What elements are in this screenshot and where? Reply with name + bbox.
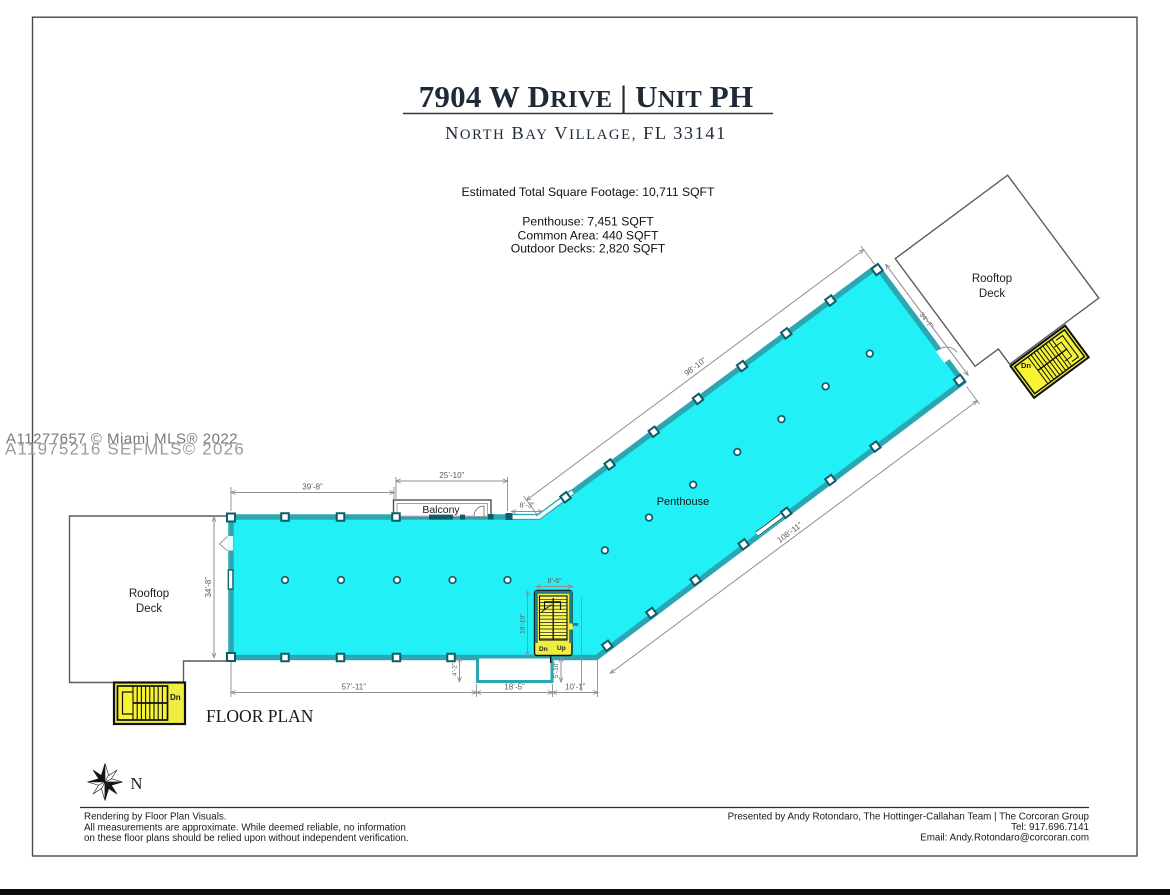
svg-text:Email: Andy.Rotondaro@corcoran: Email: Andy.Rotondaro@corcoran.com xyxy=(920,832,1089,843)
svg-text:Estimated Total Square Footage: Estimated Total Square Footage: 10,711 S… xyxy=(462,185,715,199)
svg-text:5’-10”: 5’-10” xyxy=(553,661,560,678)
svg-text:25’-10”: 25’-10” xyxy=(439,471,464,480)
svg-text:Penthouse: Penthouse xyxy=(657,496,710,508)
svg-text:Dn: Dn xyxy=(170,693,181,702)
svg-text:Rendering by Floor Plan Visual: Rendering by Floor Plan Visuals. xyxy=(84,812,227,823)
svg-text:Up: Up xyxy=(557,645,566,652)
svg-text:Rooftop: Rooftop xyxy=(972,273,1012,285)
svg-text:8’-6”: 8’-6” xyxy=(547,578,562,585)
svg-text:Dn: Dn xyxy=(539,646,548,653)
svg-text:NORTH BAY VILLAGE, FL 33141: NORTH BAY VILLAGE, FL 33141 xyxy=(445,123,727,143)
svg-text:Common Area: 440 SQFT: Common Area: 440 SQFT xyxy=(518,228,659,242)
svg-text:16’-10”: 16’-10” xyxy=(520,614,527,634)
svg-text:N: N xyxy=(131,774,143,793)
svg-text:10’-1”: 10’-1” xyxy=(565,683,586,692)
svg-text:All measurements are approxima: All measurements are approximate. While … xyxy=(84,822,406,833)
svg-text:Rooftop: Rooftop xyxy=(129,588,169,600)
svg-text:7904 W DRIVE | UNIT PH: 7904 W DRIVE | UNIT PH xyxy=(419,79,754,114)
svg-text:39’-8”: 39’-8” xyxy=(302,483,323,492)
svg-text:Deck: Deck xyxy=(979,288,1005,300)
svg-text:34’-8”: 34’-8” xyxy=(204,577,213,598)
svg-text:Dn: Dn xyxy=(1021,361,1031,370)
svg-text:Outdoor Decks: 2,820 SQFT: Outdoor Decks: 2,820 SQFT xyxy=(511,242,666,256)
svg-text:57’-11”: 57’-11” xyxy=(342,683,367,692)
svg-text:18’-5”: 18’-5” xyxy=(504,683,525,692)
svg-text:4’-2”: 4’-2” xyxy=(452,663,459,676)
svg-text:FLOOR PLAN: FLOOR PLAN xyxy=(206,706,314,726)
svg-text:on these floor plans should be: on these floor plans should be relied up… xyxy=(84,833,409,844)
svg-text:Deck: Deck xyxy=(136,603,162,615)
svg-text:Penthouse: 7,451 SQFT: Penthouse: 7,451 SQFT xyxy=(522,215,654,229)
svg-text:A11975216 SEFMLS© 2026: A11975216 SEFMLS© 2026 xyxy=(5,440,245,459)
svg-text:Presented by Andy Rotondaro, T: Presented by Andy Rotondaro, The Hotting… xyxy=(728,812,1090,823)
svg-text:Balcony: Balcony xyxy=(422,504,460,516)
